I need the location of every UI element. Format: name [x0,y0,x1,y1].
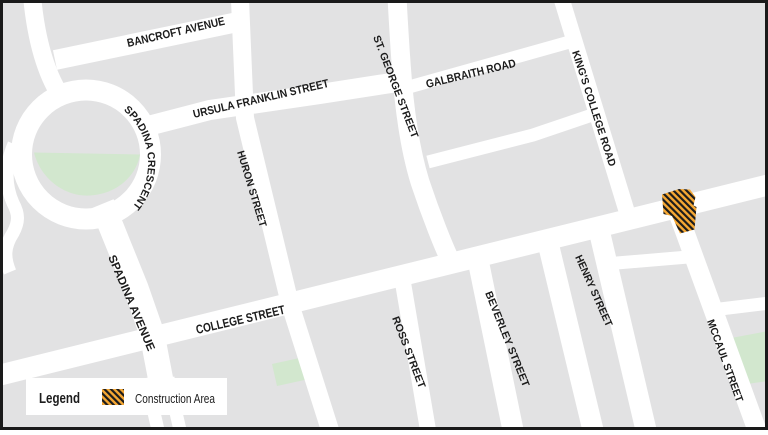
svg-text:Construction Area: Construction Area [135,391,216,406]
svg-text:Legend: Legend [39,390,80,407]
